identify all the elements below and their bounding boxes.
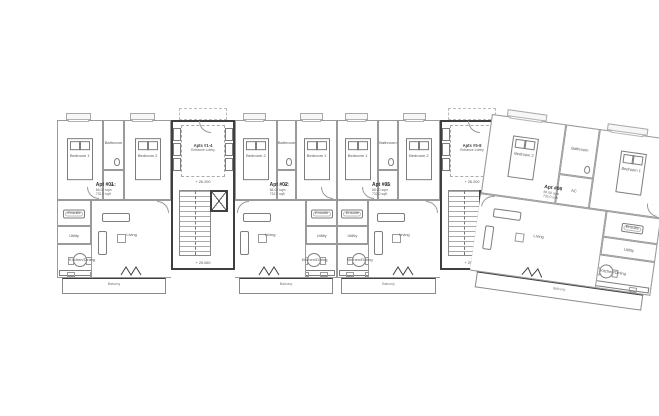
room-bathroom: Bathroom xyxy=(559,124,600,178)
room-utility: Utility xyxy=(57,226,91,244)
sofa-symbol xyxy=(377,213,405,222)
window xyxy=(302,119,320,122)
window xyxy=(132,119,153,122)
sofa-symbol xyxy=(493,208,522,221)
unit-area-sqft: 732.0 sqft xyxy=(270,192,288,196)
room-label: Kitchen/Dining xyxy=(338,258,381,262)
room-label: Living xyxy=(92,233,171,237)
storage-cupboard xyxy=(173,128,181,141)
sofa-symbol xyxy=(243,213,271,222)
bifold-door-icon xyxy=(392,266,416,276)
room-living: Living xyxy=(235,200,306,278)
door-arc-icon xyxy=(426,201,438,213)
floor-plan: Bedroom 1 Bathroom AC Bedroom 2 Ensuite … xyxy=(55,120,655,330)
level-marker-lower: + 25.060 xyxy=(173,261,233,265)
door-arc-icon xyxy=(237,201,249,213)
room-label: Bedroom 2 xyxy=(125,154,170,158)
toilet-symbol xyxy=(584,165,591,174)
unit-label: Apt #02 68.00 sqm 732.0 sqft xyxy=(270,182,288,196)
room-label: Bathroom xyxy=(563,145,596,153)
bed-symbol xyxy=(135,138,161,180)
storage-cupboard xyxy=(225,158,233,171)
room-ensuite: Ensuite xyxy=(337,200,368,226)
storage-cupboard xyxy=(173,143,181,156)
room-label: AC xyxy=(558,187,591,195)
storage-cupboard xyxy=(442,143,450,156)
room-balcony: Balcony xyxy=(62,278,167,294)
room-label: Bedroom 2 xyxy=(236,154,276,158)
room-label: Bathroom xyxy=(278,141,295,145)
room-bedroom-1: Bedroom 1 xyxy=(589,129,659,218)
room-ensuite: Ensuite xyxy=(57,200,91,226)
storage-cupboard xyxy=(173,158,181,171)
bed-symbol xyxy=(243,138,269,180)
apartment-unit-05: Bedroom 1 Bathroom AC Bedroom 2 Ensuite … xyxy=(337,120,440,296)
storage-cupboard xyxy=(225,143,233,156)
window xyxy=(68,119,89,122)
room-label: Utility xyxy=(603,244,656,255)
room-label: Balcony xyxy=(63,283,166,287)
bed-symbol xyxy=(304,138,330,180)
room-label: Bathroom xyxy=(104,141,124,145)
room-bedroom-1: Bedroom 1 xyxy=(296,120,337,200)
level-marker-upper: + 26.200 xyxy=(173,180,233,184)
toilet-symbol xyxy=(388,158,394,166)
bed-symbol xyxy=(345,138,371,180)
window xyxy=(347,119,366,122)
bifold-door-icon xyxy=(521,266,546,279)
entrance-canopy xyxy=(448,108,496,120)
room-label: Bathroom xyxy=(379,141,397,145)
apartment-unit-06: Bedroom 1 Bathroom AC Bedroom 2 Ensuite … xyxy=(468,114,659,314)
room-label: Bedroom 2 xyxy=(399,154,439,158)
room-bathroom: Bathroom xyxy=(277,120,296,170)
lobby-sublabel: Entrance Lobby xyxy=(182,148,224,152)
apartment-unit-01: Bedroom 1 Bathroom AC Bedroom 2 Ensuite … xyxy=(57,120,171,296)
bed-symbol xyxy=(406,138,432,180)
unit-label: Apt #01 68.00 sqm 732.0 sqft xyxy=(96,182,114,196)
room-balcony: Balcony xyxy=(341,278,436,294)
room-label: Utility xyxy=(338,234,367,238)
room-label: Ensuite xyxy=(338,211,367,215)
bed-symbol xyxy=(67,138,93,180)
window xyxy=(245,119,263,122)
room-label: Ensuite xyxy=(307,211,336,215)
staircase xyxy=(179,190,211,256)
room-label: Utility xyxy=(307,234,336,238)
room-bedroom-2: Bedroom 2 xyxy=(124,120,171,200)
room-utility: Utility xyxy=(306,226,337,244)
room-living: Living xyxy=(91,200,171,278)
room-label: Balcony xyxy=(342,283,435,287)
door-arc-icon xyxy=(481,194,495,208)
unit-area-sqft: 732.0 sqft xyxy=(96,192,114,196)
unit-label: Apt #06 68.00 sqm 732.0 sqft xyxy=(543,184,563,201)
entrance-lobby: Apts #1-4 Entrance Lobby xyxy=(181,125,225,177)
room-label: Bedroom 1 xyxy=(338,154,377,158)
room-label: Kitchen/Dining xyxy=(58,258,106,262)
room-bedroom-2: Bedroom 2 xyxy=(398,120,440,200)
storage-cupboard xyxy=(442,158,450,171)
sofa-symbol xyxy=(102,213,130,222)
bifold-door-icon xyxy=(120,266,144,276)
room-label: Ensuite xyxy=(58,211,90,215)
room-label: Bedroom 1 xyxy=(58,154,102,158)
room-label: Kitchen/Dining xyxy=(293,258,336,262)
elevator xyxy=(210,190,228,212)
stair-core-apts-1-4: Apts #1-4 Entrance Lobby + 26.200 + 25.0… xyxy=(171,120,235,270)
room-balcony: Balcony xyxy=(239,278,333,294)
apartment-unit-02: Bedroom 1 Bathroom AC Bedroom 2 Ensuite … xyxy=(235,120,337,296)
door-arc-icon xyxy=(645,203,659,217)
room-utility: Utility xyxy=(337,226,368,244)
room-bathroom: Bathroom xyxy=(103,120,125,170)
window xyxy=(405,119,424,122)
room-label: Living xyxy=(369,233,440,237)
entrance-canopy xyxy=(179,108,227,120)
unit-area-sqft: 732.0 sqft xyxy=(372,192,390,196)
door-arc-icon xyxy=(321,187,333,199)
bifold-door-icon xyxy=(258,266,282,276)
room-living: Living xyxy=(368,200,440,278)
room-label: Bedroom 1 xyxy=(297,154,336,158)
room-label: Utility xyxy=(58,234,90,238)
room-label: Living xyxy=(235,233,305,237)
room-ensuite: Ensuite xyxy=(306,200,337,226)
room-label: Living xyxy=(476,226,602,248)
toilet-symbol xyxy=(286,158,292,166)
toilet-symbol xyxy=(114,158,120,166)
storage-cupboard xyxy=(225,128,233,141)
room-label: Balcony xyxy=(240,283,332,287)
door-arc-icon xyxy=(157,201,169,213)
storage-cupboard xyxy=(442,128,450,141)
unit-label: Apt #05 68.00 sqm 732.0 sqft xyxy=(372,182,390,196)
room-bathroom: Bathroom xyxy=(378,120,398,170)
